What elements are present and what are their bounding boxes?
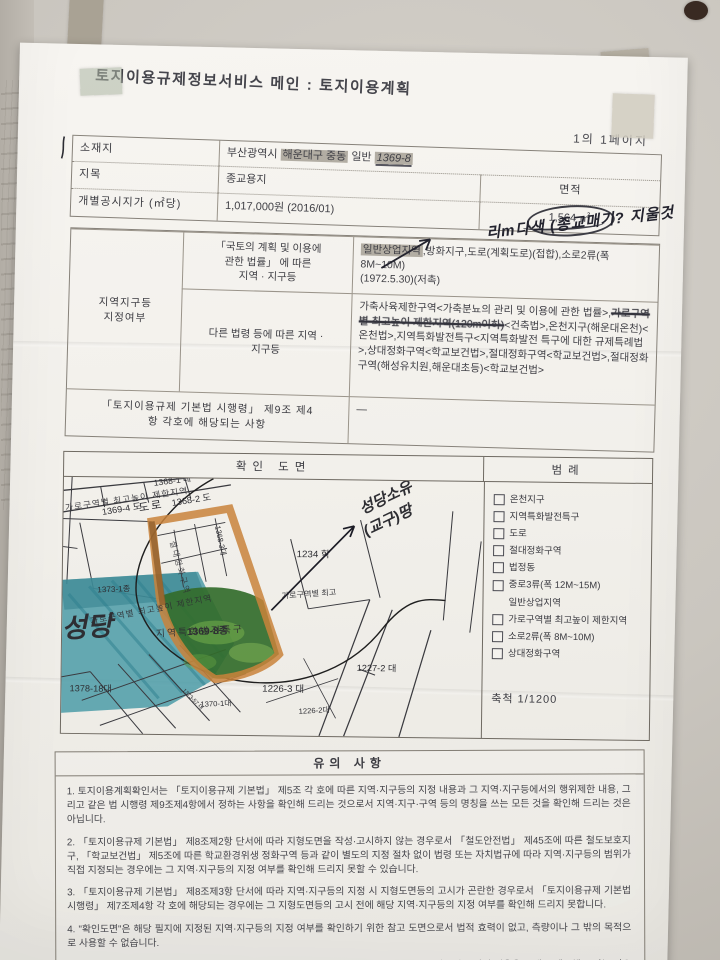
notes-section: 유의 사항 1. 토지이용계획확인서는 「토지이용규제 기본법」 제5조 각 호… bbox=[55, 749, 646, 960]
cadastral-map: 1368-1 대 1368-2 도 1369-4 도 도로 가로구역별 최고높이… bbox=[61, 477, 484, 738]
legend-title: 범례 bbox=[484, 457, 652, 484]
parcel-label: 1227-2 대 bbox=[357, 663, 397, 673]
legend-label: 절대정화구역 bbox=[509, 543, 562, 561]
pen-mark bbox=[56, 134, 71, 160]
map-section: 확인 도면 범례 bbox=[60, 451, 653, 741]
note-paragraph: 1. 토지이용계획확인서는 「토지이용규제 기본법」 제5조 각 호에 따른 지… bbox=[67, 784, 631, 828]
parcel-label: 1373-1종 bbox=[97, 584, 130, 594]
note-paragraph: 2. 「토지이용규제 기본법」 제8조제2항 단서에 따라 지형도면을 작성·고… bbox=[67, 834, 631, 878]
parcel-label: 1370-1대 bbox=[200, 699, 231, 709]
map-legend: 온천지구 지역특화발전특구 도로 절대정화구역 법정동 중로3류(폭 12M~1… bbox=[481, 482, 652, 740]
decree-value: — bbox=[347, 396, 654, 452]
note-paragraph: 3. 「토지이용규제 기본법」 제8조제3항 단서에 따라 지역·지구등의 지정… bbox=[67, 885, 631, 915]
document-paper: 토지이용규제정보서비스 메인 : 토지이용계획 1의 1페이지 소재지 부산광역… bbox=[0, 43, 688, 960]
legend-item: 일반상업지역 bbox=[492, 594, 646, 613]
national-law-label: 「국토의 계획 및 이용에 관한 법률」 에 따른 지역 · 지구등 bbox=[182, 232, 354, 294]
cadastral-map-drawing: 1368-1 대 1368-2 도 1369-4 도 도로 가로구역별 최고높이… bbox=[61, 477, 484, 738]
checkbox-icon bbox=[494, 494, 505, 505]
legend-item: 소로2류(폭 8M~10M) bbox=[492, 628, 646, 647]
legend-item: 법정동 bbox=[493, 560, 647, 579]
legend-item: 도로 bbox=[493, 525, 647, 544]
parcel-label: 1368-3대 bbox=[213, 525, 228, 556]
legend-item: 가로구역별 최고높이 제한지역 bbox=[492, 611, 646, 630]
zoning-row-header: 지역지구등 지정여부 bbox=[67, 228, 183, 391]
parcel-label: 1226-3 대 bbox=[262, 684, 304, 695]
decree-label: 「토지이용규제 기본법 시행령」 제9조 제4 항 각호에 해당되는 사항 bbox=[66, 388, 349, 443]
location-mid: 일반 bbox=[348, 151, 375, 164]
checkbox-icon bbox=[493, 511, 504, 522]
handwritten-arrow-icon bbox=[271, 525, 354, 611]
subject-parcel-label: 1369-8종 bbox=[187, 625, 229, 638]
location-highlight-district: 해운대구 중동 bbox=[280, 149, 348, 163]
legend-label: 온천지구 bbox=[510, 491, 545, 509]
zoning-table: 리m다색 (종교매기? 지울것 지역지구등 지정여부 「국토의 계획 및 이용에… bbox=[65, 227, 661, 452]
checkbox-icon bbox=[493, 528, 504, 539]
tape-right-edge bbox=[611, 93, 655, 138]
legend-label: 소로2류(폭 8M~10M) bbox=[508, 628, 595, 646]
land-price-label: 개별공시지가 (㎡당) bbox=[71, 188, 218, 221]
checkbox-icon bbox=[492, 648, 503, 659]
parcel-label: 1226-2대 bbox=[298, 705, 329, 716]
legend-item: 온천지구 bbox=[494, 491, 648, 510]
legend-item: 지역특화발전특구 bbox=[493, 508, 647, 527]
checkbox-icon bbox=[493, 580, 504, 591]
handwritten-arrow-icon bbox=[377, 230, 442, 272]
legend-item: 중로3류(폭 12M~15M) bbox=[493, 577, 647, 596]
checkbox-icon bbox=[492, 614, 503, 625]
legend-item: 상대정화구역 bbox=[492, 645, 646, 664]
legend-label: 가로구역별 최고높이 제한지역 bbox=[508, 611, 627, 630]
legend-item: 절대정화구역 bbox=[493, 543, 647, 562]
checkbox-icon bbox=[493, 563, 504, 574]
checkbox-icon bbox=[492, 631, 503, 642]
other-law-label: 다른 법령 등에 따른 지역 · 지구등 bbox=[179, 289, 352, 397]
wall-dark-spot bbox=[684, 1, 708, 20]
parcel-label: 1378-18대 bbox=[70, 684, 112, 694]
height-limit-zone-partial-label: 가로구역별 최고 bbox=[281, 587, 337, 601]
notes-title: 유의 사항 bbox=[56, 750, 644, 776]
legend-label: 중로3류(폭 12M~15M) bbox=[509, 577, 601, 595]
other-law-value: 가축사육제한구역<가축분뇨의 관리 및 이용에 관한 법률>,가로구역별 최고높… bbox=[349, 293, 658, 405]
legend-label: 상대정화구역 bbox=[508, 645, 561, 663]
document-title: 토지이용규제정보서비스 메인 : 토지이용계획 bbox=[95, 64, 663, 110]
legend-label: 일반상업지역 bbox=[508, 594, 561, 612]
tape-on-title bbox=[80, 67, 123, 95]
legend-label: 법정동 bbox=[509, 560, 535, 577]
checkbox-icon bbox=[493, 546, 504, 557]
legend-label: 도로 bbox=[509, 526, 527, 543]
location-prefix: 부산광역시 bbox=[227, 147, 281, 161]
location-highlight-lot-number: 1369-8 bbox=[374, 152, 413, 165]
note-paragraph: 4. "확인도면"은 해당 필지에 지정된 지역·지구등의 지정 여부를 확인하… bbox=[67, 922, 631, 952]
photo-of-document: 토지이용규제정보서비스 메인 : 토지이용계획 1의 1페이지 소재지 부산광역… bbox=[0, 0, 720, 960]
handwritten-cathedral-label: 성당 bbox=[61, 610, 117, 643]
map-scale: 축척 1/1200 bbox=[491, 690, 645, 708]
legend-label: 지역특화발전특구 bbox=[509, 509, 579, 527]
